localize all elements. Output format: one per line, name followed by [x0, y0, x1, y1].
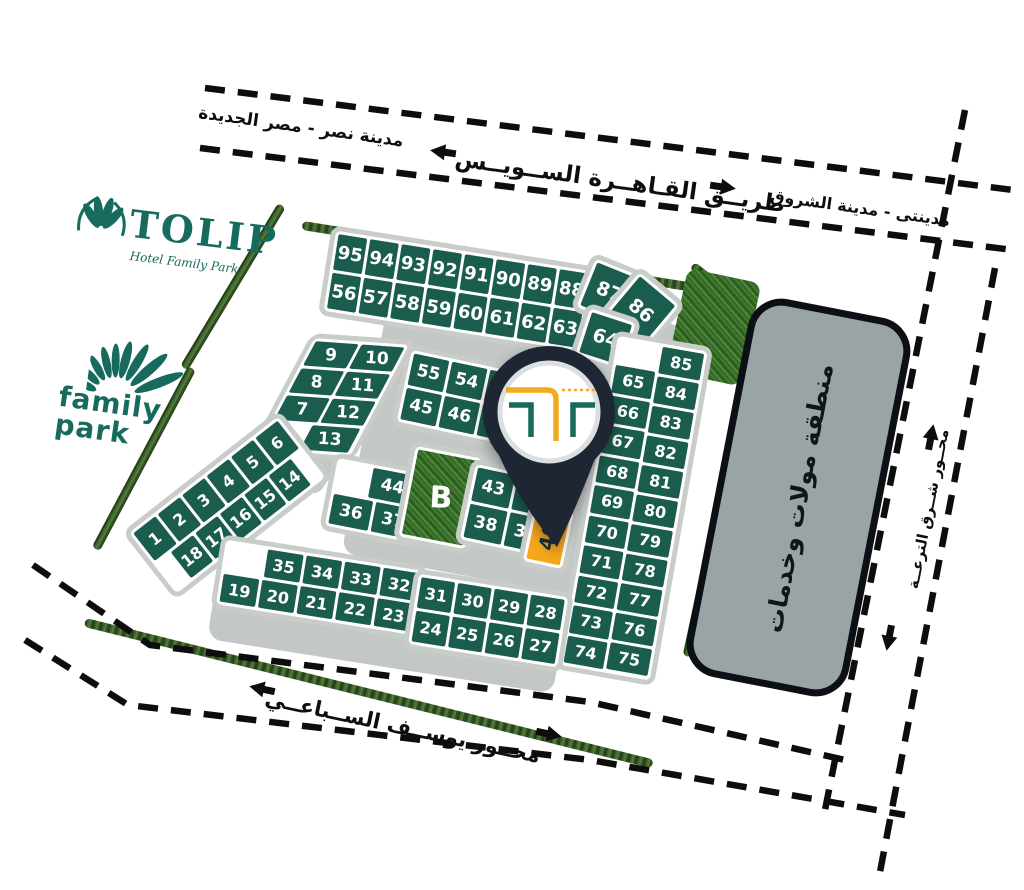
plot-label: 89 — [526, 272, 554, 297]
plot-label: 65 — [621, 371, 646, 394]
plot-84[interactable]: 84 — [653, 376, 699, 410]
plot-72[interactable]: 72 — [574, 575, 618, 609]
plot-label: 30 — [460, 590, 485, 612]
plot-label: 5 — [243, 451, 263, 473]
plot-label: 59 — [425, 295, 453, 320]
plot-label: 46 — [446, 403, 473, 427]
plot-83[interactable]: 83 — [648, 406, 694, 440]
plot-36[interactable]: 36 — [328, 494, 373, 531]
masterplan-map: 9594939291908988565758596061626387866465… — [0, 0, 1024, 890]
plot-label: 61 — [488, 305, 516, 330]
plot-55[interactable]: 55 — [408, 353, 450, 392]
plot-73[interactable]: 73 — [569, 605, 613, 639]
plot-61[interactable]: 61 — [485, 298, 519, 338]
plot-label: 28 — [533, 601, 558, 623]
plot-35[interactable]: 35 — [264, 549, 304, 582]
plot-label: 55 — [415, 361, 442, 385]
plot-label: 68 — [605, 461, 630, 484]
plot-label: 2 — [169, 509, 189, 531]
plot-label: 27 — [528, 635, 553, 657]
plot-label: 73 — [578, 611, 603, 634]
plot-label: 12 — [335, 401, 360, 423]
plot-label: 76 — [622, 618, 647, 641]
plot-57[interactable]: 57 — [359, 278, 393, 318]
plot-label: 60 — [456, 300, 484, 325]
plot-91[interactable]: 91 — [459, 254, 493, 294]
plot-label: 57 — [362, 285, 390, 310]
plot-70[interactable]: 70 — [585, 515, 629, 549]
plot-label: 33 — [348, 567, 373, 589]
plot-68[interactable]: 68 — [595, 455, 639, 489]
plot-28[interactable]: 28 — [526, 595, 564, 631]
plot-label: 95 — [336, 242, 364, 267]
plot-label: 66 — [615, 401, 640, 424]
plot-76[interactable]: 76 — [611, 613, 657, 647]
plot-label: 77 — [627, 589, 652, 612]
plot-label: 7 — [296, 399, 309, 420]
plot-85[interactable]: 85 — [658, 347, 704, 381]
plot-label: 15 — [251, 485, 280, 514]
plot-label: 62 — [520, 310, 548, 335]
plot-89[interactable]: 89 — [523, 264, 557, 304]
plot-label: 23 — [381, 604, 406, 626]
plot-label: 70 — [594, 521, 619, 544]
plot-78[interactable]: 78 — [622, 554, 668, 588]
plot-label: 35 — [271, 555, 296, 577]
plot-label: 19 — [227, 579, 252, 601]
plot-label: 93 — [399, 252, 427, 277]
plot-label: 13 — [318, 428, 343, 450]
plot-38[interactable]: 38 — [463, 504, 507, 545]
plot-27[interactable]: 27 — [521, 628, 559, 664]
plot-label: 34 — [310, 561, 335, 583]
plot-label: 36 — [337, 500, 364, 524]
plot-label: 71 — [589, 551, 614, 574]
plot-label: 79 — [637, 530, 662, 553]
plot-45[interactable]: 45 — [400, 388, 442, 427]
plot-24[interactable]: 24 — [411, 611, 449, 647]
plot-label: 3 — [194, 489, 214, 511]
plot-33[interactable]: 33 — [341, 562, 381, 595]
plot-label: 1 — [145, 528, 165, 550]
plot-label: 45 — [408, 395, 435, 419]
plot-label: 6 — [267, 432, 287, 454]
plot-label: 22 — [342, 598, 367, 620]
plot-25[interactable]: 25 — [448, 617, 486, 653]
plot-19[interactable]: 19 — [219, 574, 259, 607]
plot-71[interactable]: 71 — [579, 545, 623, 579]
plot-10[interactable]: 10 — [349, 344, 405, 371]
plot-34[interactable]: 34 — [302, 556, 342, 589]
plot-label: 84 — [663, 382, 688, 405]
plot-11[interactable]: 11 — [335, 372, 391, 399]
plot-22[interactable]: 22 — [335, 592, 375, 625]
plot-20[interactable]: 20 — [258, 580, 298, 613]
plot-93[interactable]: 93 — [396, 244, 430, 284]
plot-label: 74 — [573, 641, 598, 664]
plot-label: 83 — [658, 411, 683, 434]
plot-31[interactable]: 31 — [417, 577, 455, 613]
plot-label: 32 — [387, 573, 412, 595]
plot-46[interactable]: 46 — [438, 396, 480, 435]
plot-label: 11 — [350, 374, 375, 396]
plot-92[interactable]: 92 — [428, 249, 462, 289]
plot-label: 90 — [494, 267, 522, 292]
plot-label: 94 — [368, 247, 396, 272]
plot-label: 25 — [455, 623, 480, 645]
plot-label: 85 — [669, 352, 694, 375]
plot-label: 58 — [393, 290, 421, 315]
plot-59[interactable]: 59 — [422, 288, 456, 328]
plot-80[interactable]: 80 — [632, 494, 678, 528]
plot-label: 8 — [310, 372, 323, 393]
plot-95[interactable]: 95 — [333, 234, 367, 274]
plot-21[interactable]: 21 — [296, 586, 336, 619]
mall-zone-label: منطقة مولات وخدمات — [758, 361, 839, 635]
plot-75[interactable]: 75 — [606, 642, 652, 676]
plot-label: 69 — [599, 491, 624, 514]
plot-label: 21 — [304, 591, 329, 613]
block-bottom-left: 353433321920212223 — [210, 534, 428, 641]
plot-82[interactable]: 82 — [643, 435, 689, 469]
plot-label: 75 — [616, 648, 641, 671]
plot-label: 38 — [472, 512, 499, 536]
plot-81[interactable]: 81 — [637, 465, 683, 499]
block-bottom-mid: 3130292824252627 — [402, 568, 574, 673]
plot-label: 67 — [610, 431, 635, 454]
plot-74[interactable]: 74 — [564, 635, 608, 669]
plot-label: 82 — [653, 441, 678, 464]
plot-label: 10 — [364, 347, 389, 369]
plot-56[interactable]: 56 — [327, 273, 361, 313]
plot-label: 24 — [418, 618, 443, 640]
plot-77[interactable]: 77 — [616, 583, 662, 617]
tolip-lotus-icon — [71, 186, 134, 252]
plot-label: 16 — [226, 504, 255, 533]
plot-62[interactable]: 62 — [517, 303, 551, 343]
plot-30[interactable]: 30 — [453, 583, 491, 619]
plot-94[interactable]: 94 — [365, 239, 399, 279]
plot-label: 43 — [480, 476, 507, 500]
plot-60[interactable]: 60 — [453, 293, 487, 333]
plot-label: 91 — [463, 262, 491, 287]
plot-label: 31 — [424, 584, 449, 606]
plot-label: 92 — [431, 257, 459, 282]
plot-label: 78 — [632, 559, 657, 582]
plot-label: 26 — [491, 629, 516, 651]
plot-label: 80 — [643, 500, 668, 523]
plot-90[interactable]: 90 — [491, 259, 525, 299]
plot-label: 29 — [497, 596, 522, 618]
plot-29[interactable]: 29 — [490, 589, 528, 625]
plot-label: 81 — [648, 471, 673, 494]
plot-label: 14 — [275, 466, 304, 495]
plot-12[interactable]: 12 — [320, 399, 376, 426]
plot-label: B — [428, 479, 453, 515]
plot-58[interactable]: 58 — [390, 283, 424, 323]
plot-label: 54 — [453, 369, 480, 393]
plot-label: 72 — [584, 581, 609, 604]
plot-54[interactable]: 54 — [446, 362, 488, 401]
plot-65[interactable]: 65 — [611, 365, 655, 399]
plot-label: 18 — [177, 542, 206, 571]
plot-label: 20 — [265, 585, 290, 607]
plot-label: 9 — [324, 344, 337, 365]
plot-79[interactable]: 79 — [627, 524, 673, 558]
plot-69[interactable]: 69 — [590, 485, 634, 519]
plot-label: 56 — [330, 280, 358, 305]
plot-26[interactable]: 26 — [485, 622, 523, 658]
